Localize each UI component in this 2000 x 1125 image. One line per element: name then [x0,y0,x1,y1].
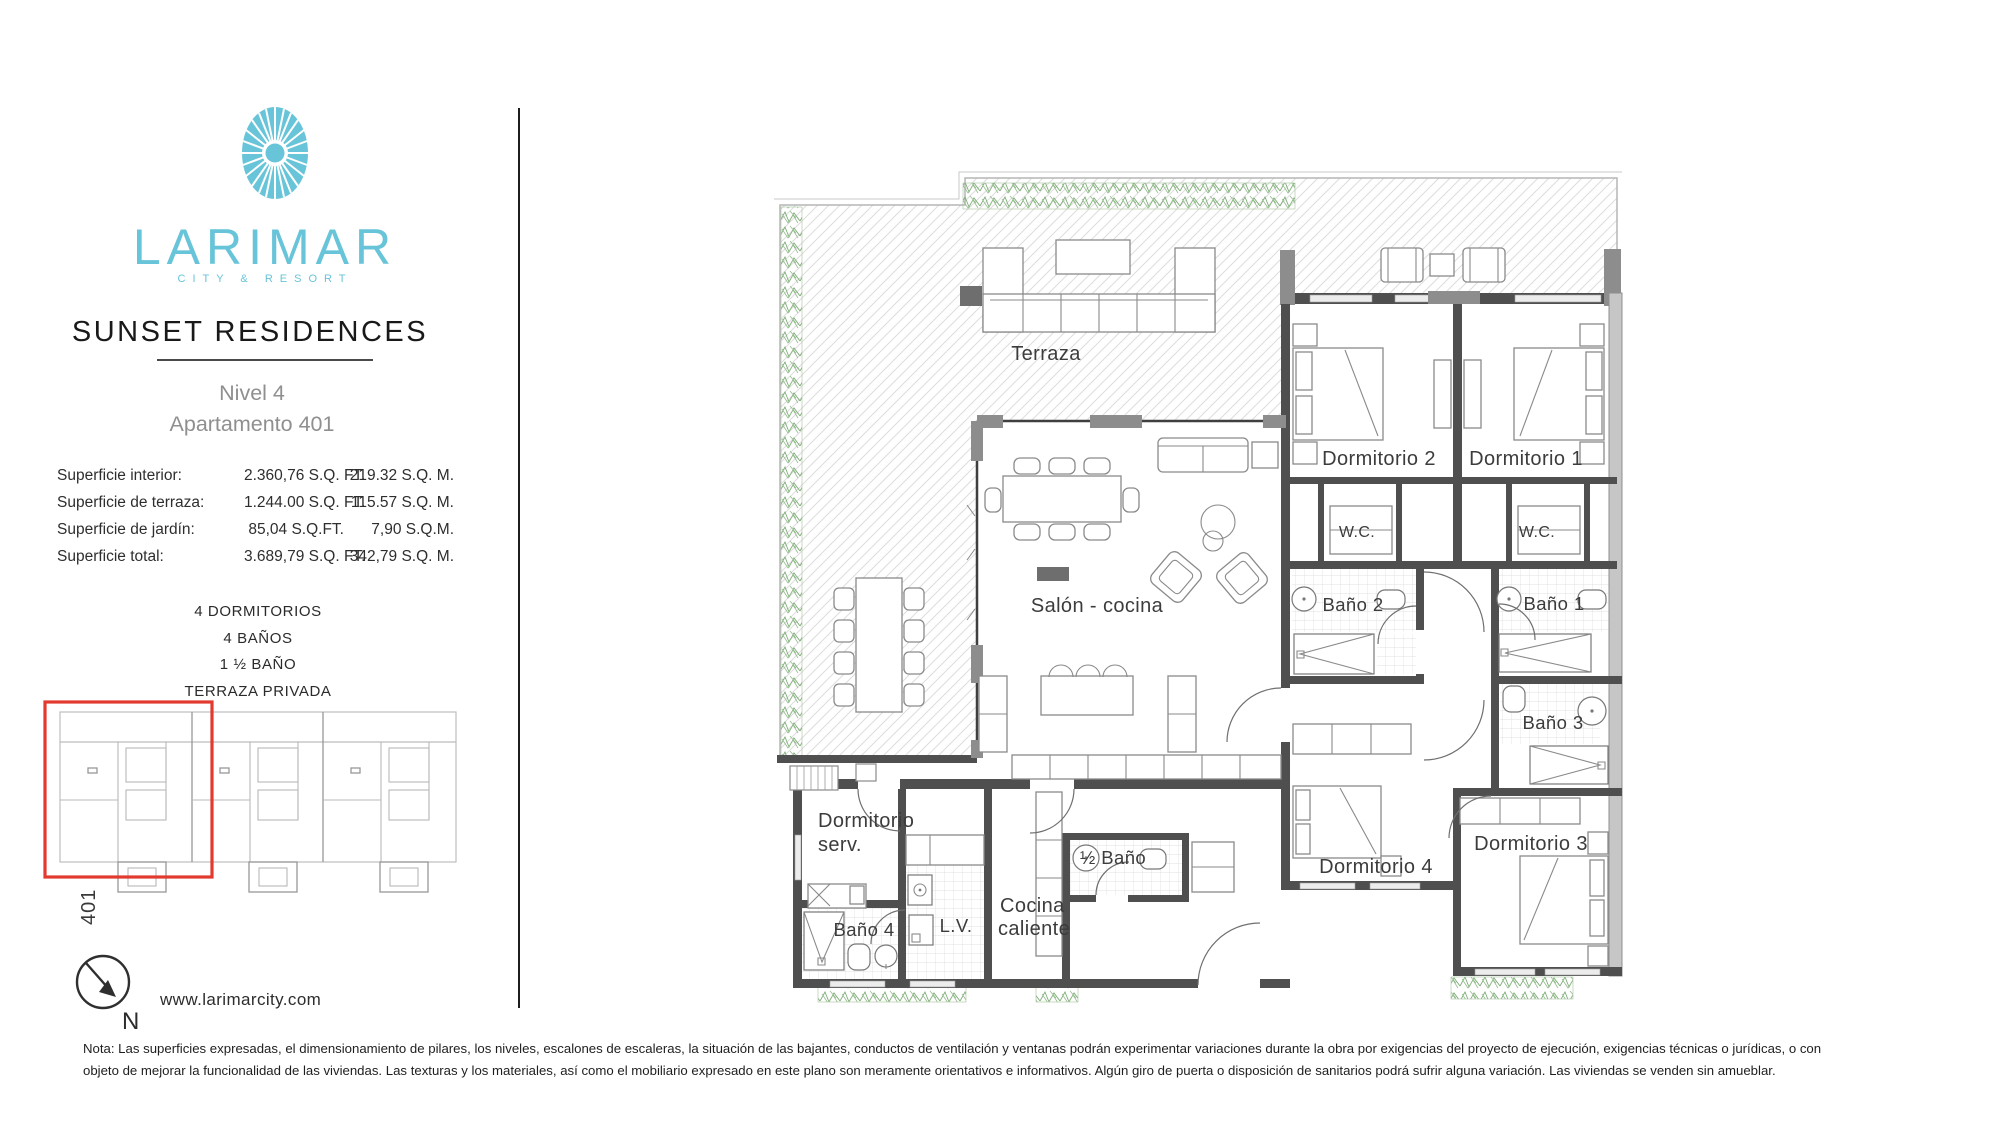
bed-dorm2 [1293,324,1383,464]
feature-item: 4 DORMITORIOS [98,599,418,626]
area-row-sqm: 219.32 S.Q. M. [344,467,454,485]
area-row-sqft: 1.244.00 S.Q. FT. [244,494,344,512]
apartment-label: Apartamento 401 [90,409,414,440]
surface-areas-table: Superficie interior: 2.360,76 S.Q. FT. 2… [57,467,454,566]
area-row-label: Superficie interior: [57,467,244,485]
room-label-wc-left: W.C. [1339,524,1375,541]
vertical-divider [518,108,520,1008]
area-row-sqft: 3.689,79 S.Q. FT. [244,548,344,566]
website-text: www.larimarcity.com [160,990,321,1010]
brand-tagline: CITY & RESORT [178,273,353,285]
hall-closet [1192,842,1234,892]
dorm-serv-furniture [808,884,866,908]
larimar-logo: LARIMAR CITY & RESORT [130,96,400,288]
area-row-sqft: 85,04 S.Q.FT. [244,521,344,539]
feature-item: 4 BAÑOS [98,626,418,653]
room-label-dorm3: Dormitorio 3 [1474,833,1588,855]
room-label-dorm-serv-1: Dormitorio [818,810,914,832]
room-label-salon: Salón - cocina [1031,595,1164,617]
salon-sofa [1158,438,1278,472]
bed-dorm1 [1514,324,1604,464]
sunburst-icon [242,107,308,199]
page-title: SUNSET RESIDENCES [40,316,460,349]
feature-item: 1 ½ BAÑO [98,652,418,679]
dorm4-furniture [1293,724,1411,876]
key-plan [40,695,470,935]
room-label-bano3: Baño 3 [1522,712,1583,733]
salon-dining-set [985,458,1139,540]
salon-armchairs [1148,549,1270,606]
room-label-cocina-1: Cocina [1000,895,1065,917]
level-block: Nivel 4 Apartamento 401 [90,378,414,440]
dorm3-furniture [1460,798,1608,966]
kitchen [979,665,1281,779]
tv-bench [1037,567,1069,581]
area-row-sqm: 115.57 S.Q. M. [344,494,454,512]
feature-list: 4 DORMITORIOS 4 BAÑOS 1 ½ BAÑO TERRAZA P… [98,599,418,705]
disclaimer-line1: Nota: Las superficies expresadas, el dim… [83,1038,1821,1060]
room-label-bano2: Baño 2 [1322,594,1383,615]
key-plan-building [60,712,456,892]
room-label-terraza: Terraza [1011,343,1081,365]
hedge-left [781,207,802,756]
terrace-coffee-table [1056,240,1130,274]
room-label-bano1: Baño 1 [1523,593,1584,614]
area-row-label: Superficie de terraza: [57,494,244,512]
title-rule [157,359,373,361]
unit-401-label: 401 [78,889,101,925]
room-label-lv: L.V. [940,915,973,936]
disclaimer-note: Nota: Las superficies expresadas, el dim… [83,1038,1821,1082]
floor-plan: Terraza Salón - cocina Dormitorio 2 Dorm… [540,140,1700,1030]
room-label-dorm1: Dormitorio 1 [1469,448,1583,470]
hedge-top [963,183,1295,209]
room-label-half-bano: ½ Baño [1080,847,1146,868]
area-row-sqft: 2.360,76 S.Q. FT. [244,467,344,485]
level-label: Nivel 4 [90,378,414,409]
north-letter: N [122,1008,139,1033]
room-label-wc-right: W.C. [1519,524,1555,541]
brochure-page: LARIMAR CITY & RESORT SUNSET RESIDENCES … [0,0,2000,1125]
area-row-sqm: 342,79 S.Q. M. [344,548,454,566]
area-row-sqm: 7,90 S.Q.M. [344,521,454,539]
floor-lamp [1201,505,1235,551]
disclaimer-line2: objeto de mejorar la funcionalidad de la… [83,1060,1821,1082]
room-label-dorm2: Dormitorio 2 [1322,448,1436,470]
area-row-label: Superficie de jardín: [57,521,244,539]
room-label-dorm-serv-2: serv. [818,834,862,856]
north-arrow: N [70,948,155,1033]
room-label-bano4: Baño 4 [833,919,894,940]
brand-wordmark: LARIMAR [133,219,397,275]
room-label-dorm4: Dormitorio 4 [1319,856,1433,878]
terrace-side-table [960,286,982,306]
room-label-cocina-2: caliente [998,918,1070,940]
area-row-label: Superficie total: [57,548,244,566]
hedge-bottom-right [1451,977,1573,999]
